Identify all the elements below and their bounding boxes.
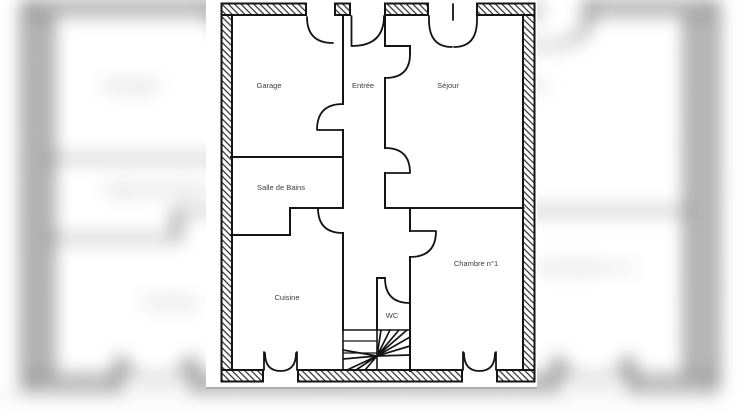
page: { "floor_plan": { "title": "Plan de mais… bbox=[0, 0, 750, 420]
floor-plan-photo bbox=[206, 0, 537, 389]
